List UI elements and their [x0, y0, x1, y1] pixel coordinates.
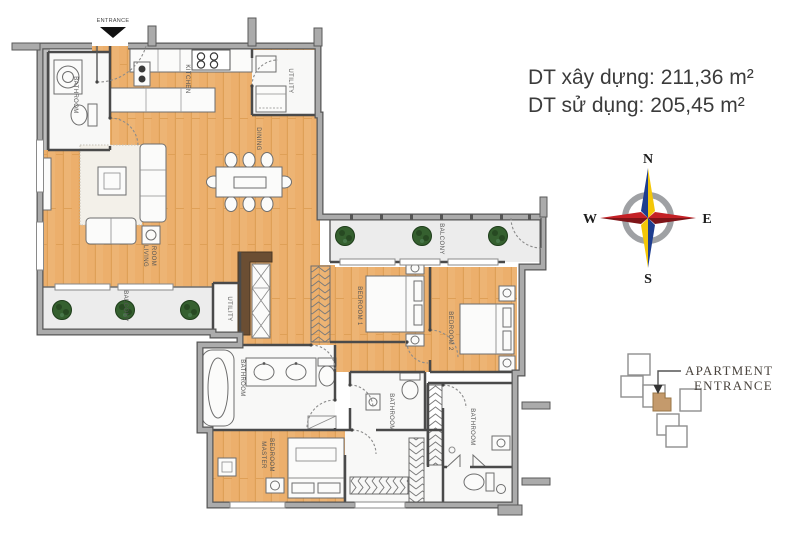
master-bedroom-label-2: BEDROOM — [268, 438, 274, 472]
utility-hall-label: UTILITY — [226, 296, 232, 321]
floorplan-page: ENTRANCE BATHROOM KITCHEN UTILITY DINING… — [0, 0, 800, 537]
hall-closet — [252, 264, 270, 338]
usable-area-text: DT sử dụng: 205,45 m² — [528, 92, 754, 120]
bedroom2-label: BEDROOM 2 — [447, 311, 453, 351]
kitchen-label: KITCHEN — [184, 64, 190, 93]
bathroom-mid-label: BATHROOM — [388, 393, 394, 430]
area-summary: DT xây dựng: 211,36 m² DT sử dụng: 205,4… — [528, 64, 754, 120]
plant-icon — [489, 227, 508, 246]
compass-north-label: N — [643, 152, 653, 167]
bathroom-master-label: BATHROOM — [239, 359, 245, 396]
compass-south-label: S — [644, 272, 652, 287]
entrance-arrow-icon — [100, 27, 126, 38]
entrance-marker: ENTRANCE — [97, 18, 130, 38]
building-key-diagram: APARTMENT ENTRANCE — [621, 354, 773, 447]
apartment-entrance-label-2: ENTRANCE — [694, 378, 773, 393]
apartment-entrance-label-1: APARTMENT — [685, 363, 773, 378]
compass-east-label: E — [702, 212, 711, 227]
living-room-label-1: LIVING — [142, 245, 148, 267]
key-arrow-line — [658, 371, 681, 385]
master-bedroom-label-1: MASTER — [260, 441, 266, 469]
built-area-text: DT xây dựng: 211,36 m² — [528, 64, 754, 92]
bathroom-entry-label: BATHROOM — [72, 76, 78, 113]
utility-kitchen-label: UTILITY — [287, 68, 293, 93]
highlighted-unit — [653, 393, 671, 411]
entrance-label: ENTRANCE — [97, 18, 130, 24]
plant-icon — [413, 227, 432, 246]
plant-icon — [336, 227, 355, 246]
compass-rose: N S W E — [583, 152, 712, 287]
bedroom1-label: BEDROOM 1 — [356, 286, 362, 326]
compass-west-label: W — [583, 212, 597, 227]
dining-label: DINING — [255, 127, 261, 150]
bathroom-right-label: BATHROOM — [469, 408, 475, 445]
living-room-label-2: ROOM — [150, 246, 156, 266]
plant-icon — [53, 301, 72, 320]
balcony-right-label: BALCONY — [438, 223, 444, 254]
plant-icon — [181, 301, 200, 320]
balcony-left-label: BALCONY — [122, 290, 128, 321]
